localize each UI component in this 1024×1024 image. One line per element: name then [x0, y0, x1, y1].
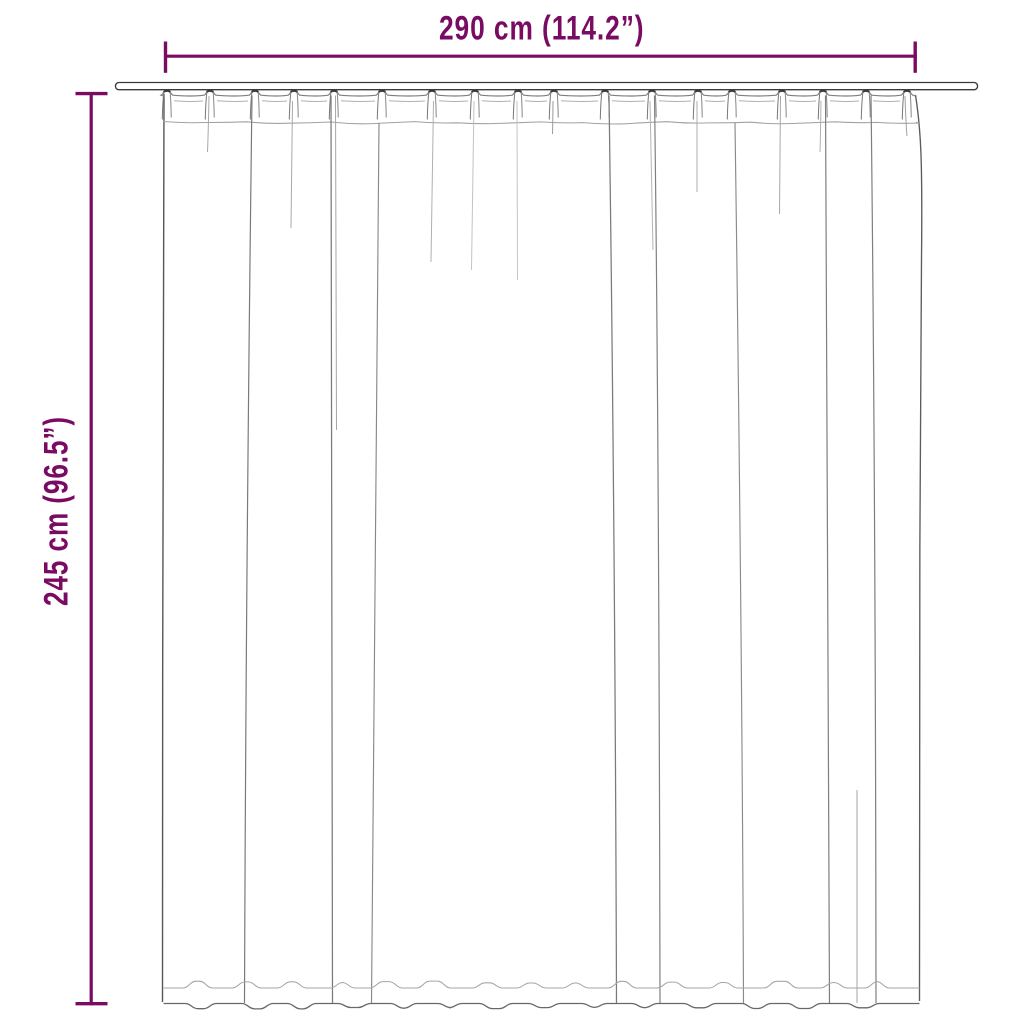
svg-text:245 cm (96.5”): 245 cm (96.5”) — [37, 416, 75, 606]
svg-text:290 cm (114.2”): 290 cm (114.2”) — [439, 10, 645, 48]
